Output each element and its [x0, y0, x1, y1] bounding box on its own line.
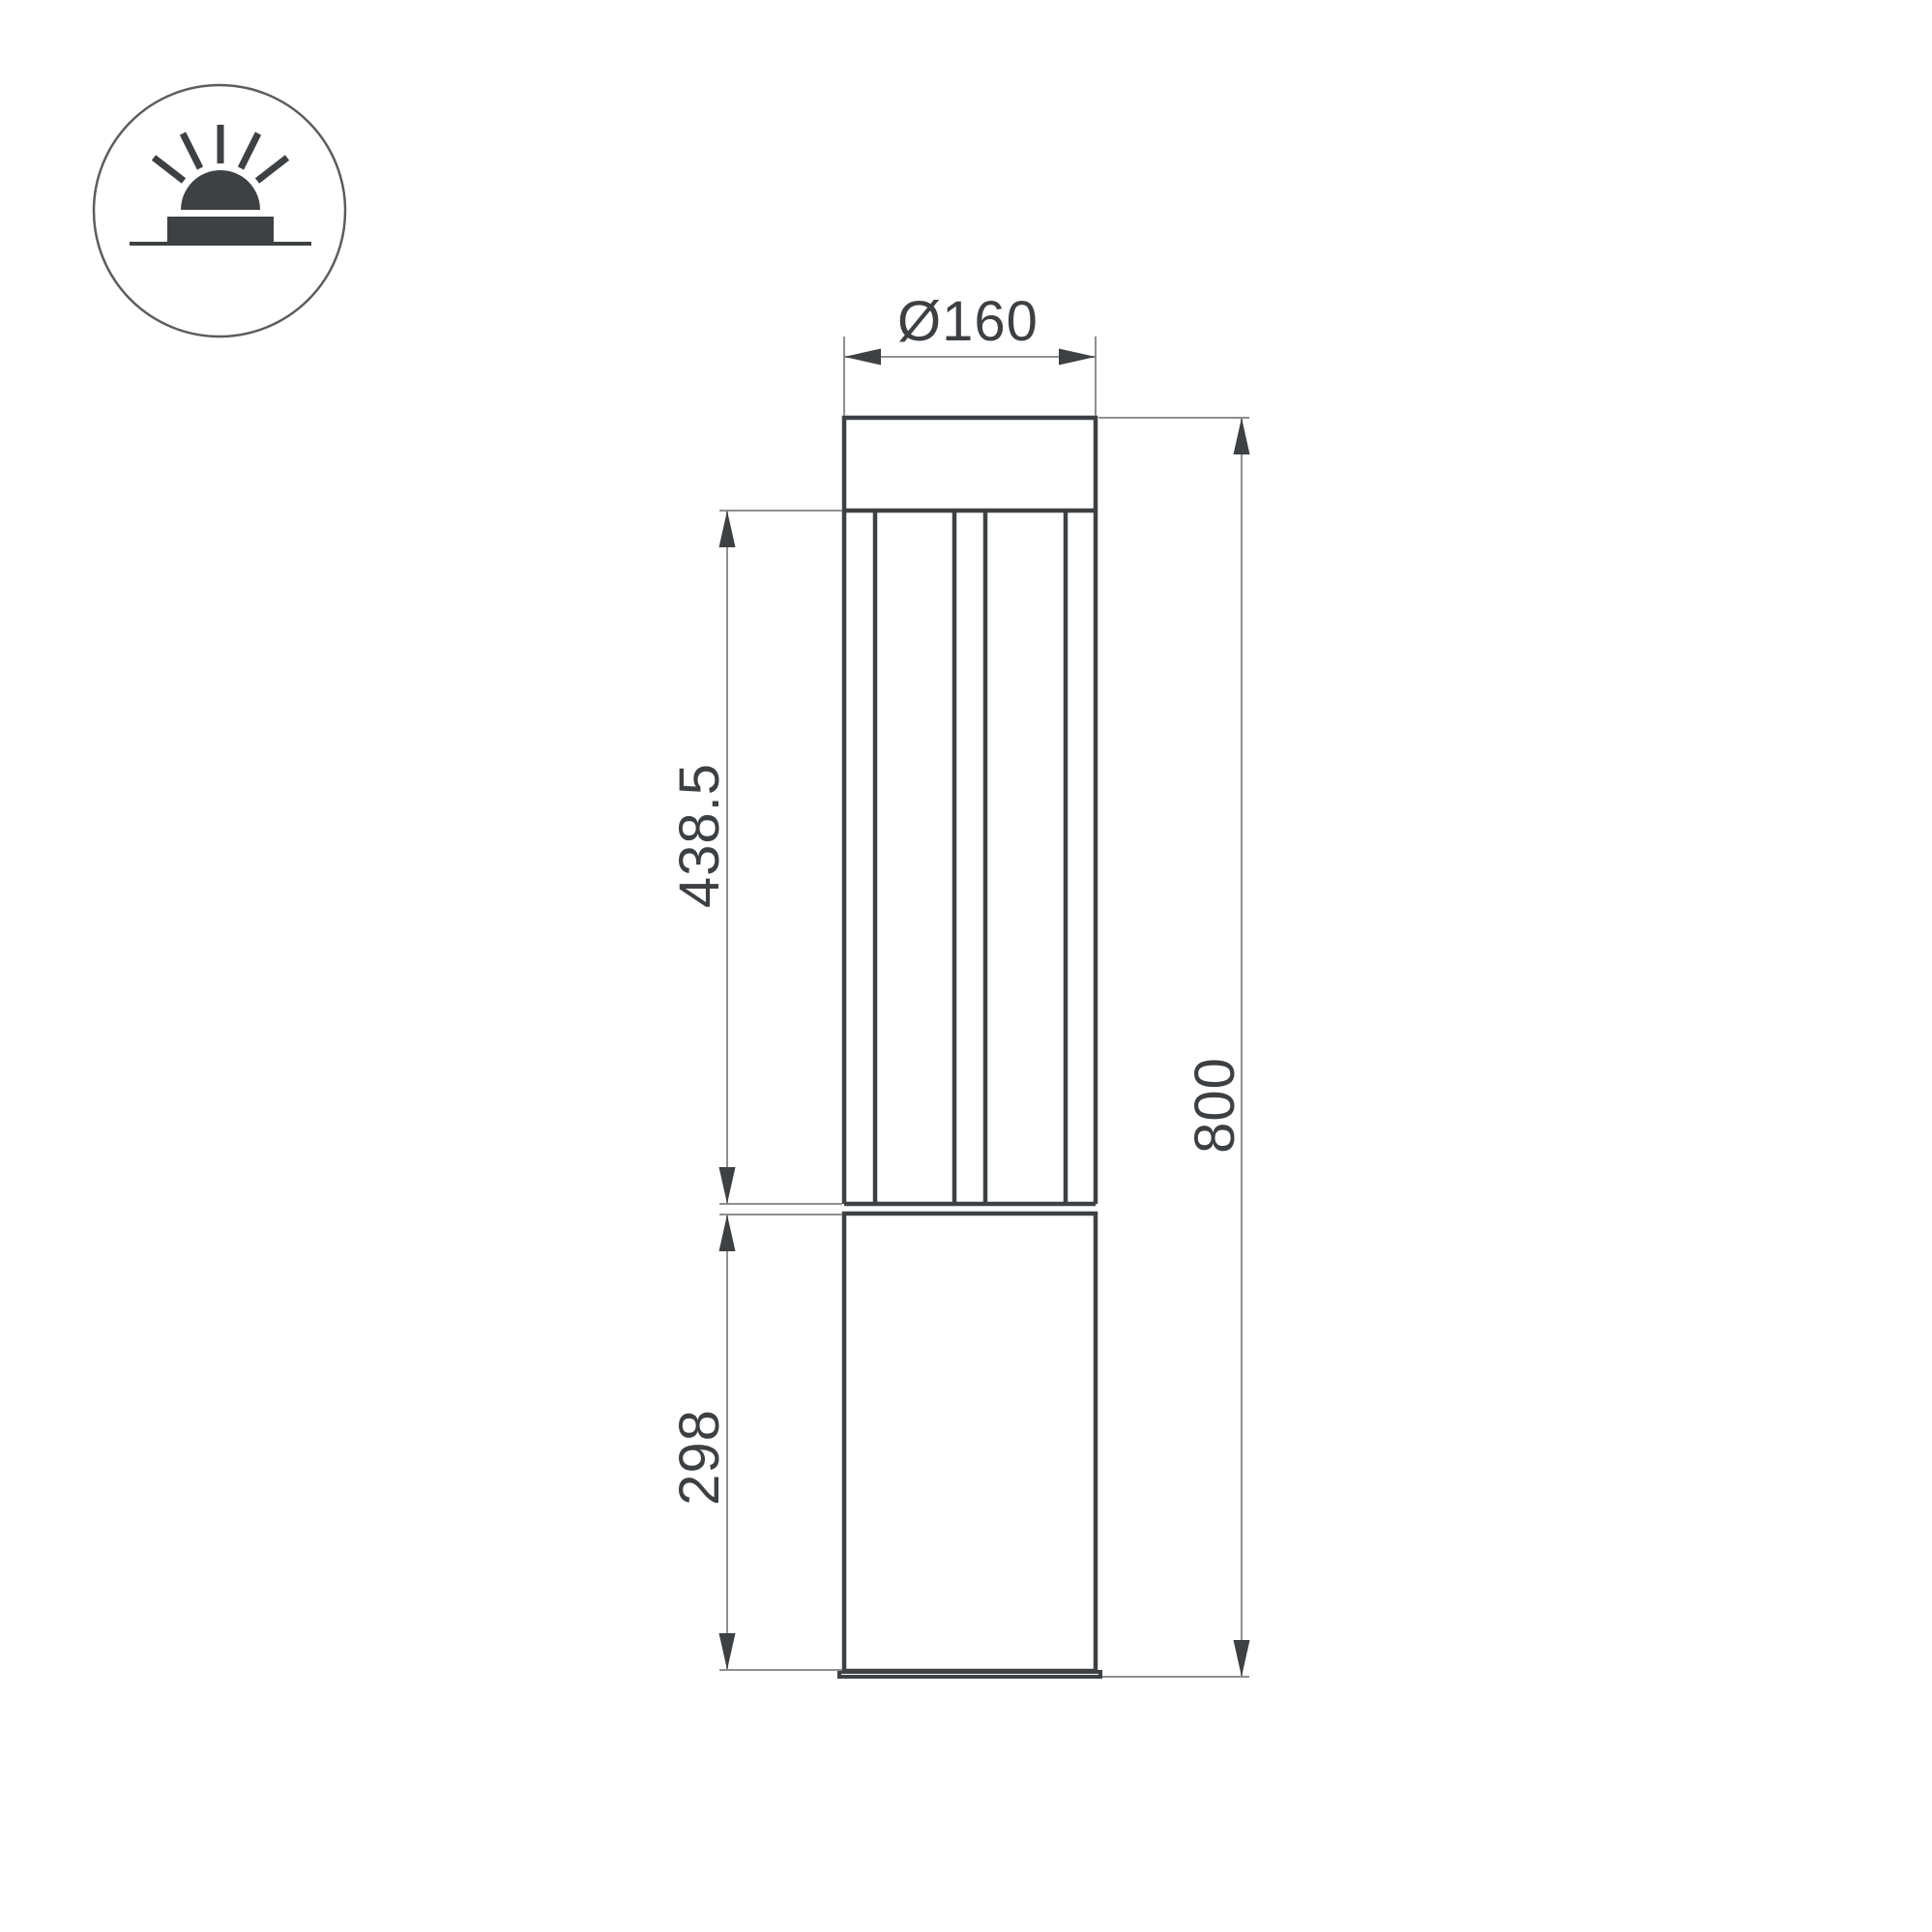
- lamp-height-label: 438.5: [668, 763, 731, 908]
- arrowhead-down: [719, 1633, 736, 1670]
- dimension-base-height: 298: [668, 1215, 842, 1670]
- surface-mounted-ground-luminaire-icon: [94, 85, 345, 337]
- bollard-foot-plate: [839, 1672, 1100, 1677]
- arrowhead-left: [844, 349, 881, 366]
- arrowhead-down: [719, 1167, 736, 1204]
- bollard-lamp-section: [844, 511, 1096, 1204]
- diameter-label: Ø160: [897, 290, 1039, 353]
- bollard-base: [844, 1214, 1096, 1671]
- bollard-dimension-drawing: Ø160 438.5 298 800: [0, 0, 1932, 1932]
- base-height-label: 298: [668, 1409, 731, 1506]
- arrowhead-up: [719, 511, 736, 547]
- arrowhead-right: [1059, 349, 1096, 366]
- technical-drawing-canvas: Ø160 438.5 298 800: [0, 0, 1932, 1932]
- dimension-lamp-height: 438.5: [668, 511, 842, 1204]
- bollard-top-cap: [844, 418, 1096, 511]
- arrowhead-up: [1234, 418, 1250, 454]
- arrowhead-up: [719, 1215, 736, 1251]
- dimension-diameter: Ø160: [844, 290, 1096, 416]
- dimension-total-height: 800: [1098, 418, 1250, 1677]
- arrowhead-down: [1234, 1640, 1250, 1677]
- icon-circle-border: [94, 85, 345, 337]
- lamp-body-icon: [167, 217, 274, 245]
- bollard-outline: [839, 418, 1100, 1677]
- total-height-label: 800: [1184, 1057, 1246, 1154]
